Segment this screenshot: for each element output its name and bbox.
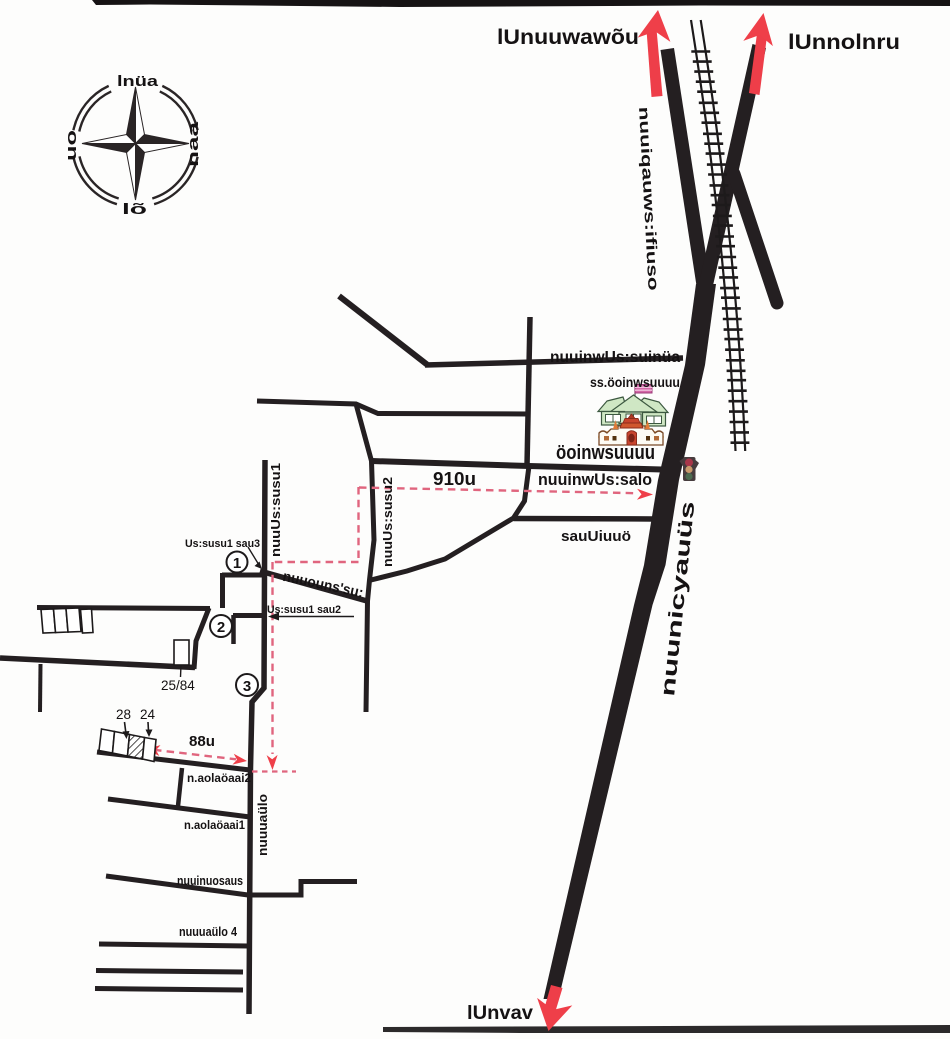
svg-text:lõ: lõ (122, 201, 147, 218)
svg-text:nuuinwUs:suinüa: nuuinwUs:suinüa (550, 349, 680, 366)
svg-text:lUnnolnru: lUnnolnru (788, 31, 900, 54)
svg-text:25/84: 25/84 (161, 678, 195, 693)
svg-text:öoinwsuuuu: öoinwsuuuu (556, 442, 655, 464)
svg-text:1: 1 (233, 555, 241, 572)
svg-text:Us:susu1 sau2: Us:susu1 sau2 (267, 604, 341, 616)
svg-text:nuuinwUs:salo: nuuinwUs:salo (538, 470, 652, 489)
svg-text:lnüa: lnüa (117, 73, 159, 90)
svg-text:nuuinuosaus: nuuinuosaus (177, 874, 243, 888)
svg-text:88u: 88u (189, 733, 215, 750)
svg-text:lUnvav: lUnvav (467, 1003, 533, 1024)
svg-text:24: 24 (140, 707, 156, 722)
svg-text:n.aolaöaai2: n.aolaöaai2 (187, 771, 251, 785)
svg-text:naa: naa (185, 121, 202, 167)
svg-text:910u: 910u (433, 469, 476, 489)
svg-text:nuuUs:susu1: nuuUs:susu1 (269, 463, 283, 557)
svg-text:n.aolaöaai1: n.aolaöaai1 (184, 818, 245, 832)
svg-text:nuuuaülo: nuuuaülo (256, 794, 270, 856)
svg-text:lUnuuwawõu: lUnuuwawõu (497, 26, 639, 49)
svg-text:28: 28 (116, 707, 131, 722)
svg-text:2: 2 (217, 619, 225, 636)
svg-text:3: 3 (243, 678, 251, 695)
svg-text:on: on (64, 130, 81, 161)
svg-text:ss.öoinwsuuuu: ss.öoinwsuuuu (590, 375, 680, 390)
svg-text:nuuUs:susu2: nuuUs:susu2 (381, 477, 395, 567)
svg-text:Us:susu1 sau3: Us:susu1 sau3 (185, 538, 260, 550)
svg-text:sauUiuuö: sauUiuuö (561, 529, 631, 545)
svg-text:nuuuaülo 4: nuuuaülo 4 (179, 925, 237, 939)
